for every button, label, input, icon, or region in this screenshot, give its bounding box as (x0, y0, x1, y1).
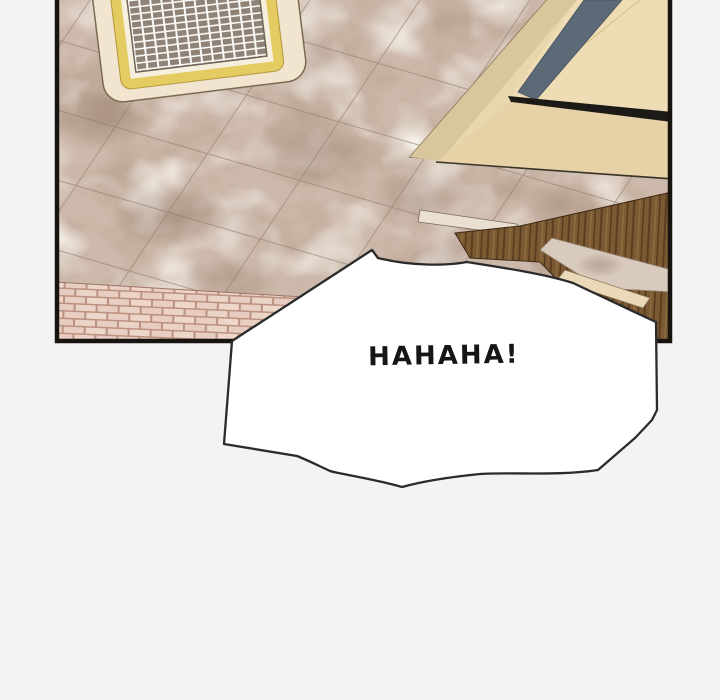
comic-page: HAHAHA! (0, 0, 720, 700)
speech-bubble-text: HAHAHA! (368, 340, 520, 373)
plaster-beam-stain (576, 253, 624, 277)
comic-panel-art: HAHAHA! (0, 0, 720, 700)
